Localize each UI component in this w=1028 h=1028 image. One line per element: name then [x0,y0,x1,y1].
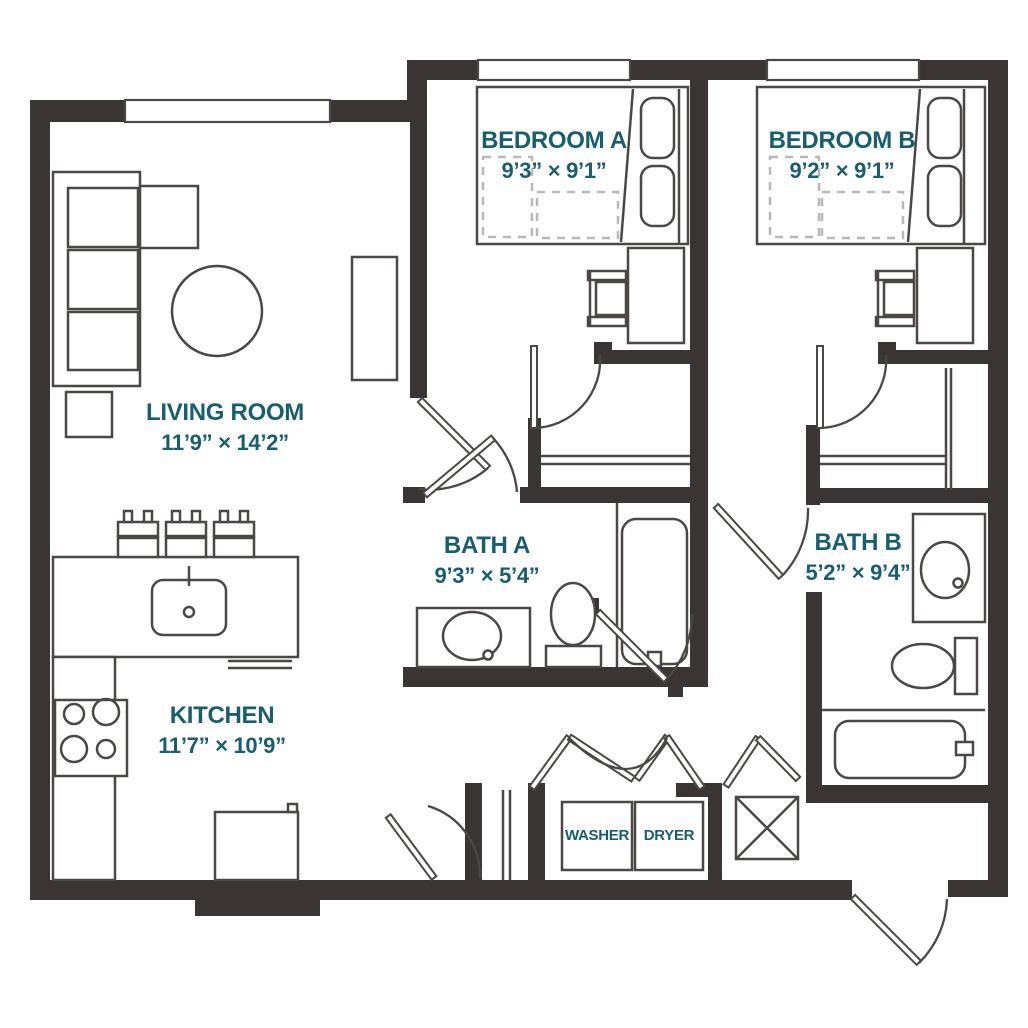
desk-chair-b-arm [876,271,914,280]
toilet-b-bowl [892,644,954,688]
door-entry [851,895,921,965]
bifold-door-mechanical [723,736,800,788]
dryer-box [635,802,703,870]
bedroom-b-window [767,60,919,80]
sofa-cushion [68,250,138,309]
coffee-table [172,266,262,356]
desk-chair-a [596,282,626,315]
door-living-room [418,398,490,470]
floor-plan-canvas: BEDROOM A 9’3” × 9’1” BEDROOM B 9’2” × 9… [0,0,1028,1028]
toilet-b-tank [955,638,977,694]
desk-chair-b-arm [876,317,914,326]
refrigerator [215,812,298,880]
kitchen-furniture [53,511,298,880]
floor-plan [0,0,1028,1028]
toilet-a-bowl [551,583,595,645]
tub-b-faucet [956,742,973,755]
bedroom-a-window [478,60,630,80]
sink-drain [184,607,194,617]
pillow [641,98,674,158]
door-bedroom-a [531,346,537,428]
door-coat-closet [386,814,437,879]
sofa-cushion [68,312,138,370]
laundry-closet [503,790,798,880]
washer-box [562,802,632,870]
sink-b [921,542,969,598]
bathtub-b [835,721,965,778]
side-table [66,392,112,437]
bedroom-b-furniture [757,87,985,490]
media-console [352,257,397,380]
bath-b-fixtures [822,514,985,778]
bar-stools [118,511,254,557]
desk-chair-a-arm [588,271,626,280]
toilet-a-tank [546,646,601,667]
living-room-furniture [53,172,397,437]
pillow [928,166,961,226]
pillow [928,98,961,158]
refrigerator-handle [288,804,297,812]
pillow [641,166,674,226]
sink-a-drain [484,651,493,660]
sofa-chaise [140,186,198,248]
bath-a-fixtures [417,503,687,667]
bifold-doors-laundry [530,735,705,790]
door-bedroom-b [817,346,823,428]
door-bath-b [714,504,783,579]
desk-chair-b [884,282,914,315]
desk-a [628,248,684,343]
bedroom-a-furniture [477,87,690,464]
desk-chair-a-arm [588,317,626,326]
desk-b [917,248,973,343]
living-room-window [125,100,330,122]
sofa-cushion [68,188,138,247]
sink-b-drain [954,579,963,588]
